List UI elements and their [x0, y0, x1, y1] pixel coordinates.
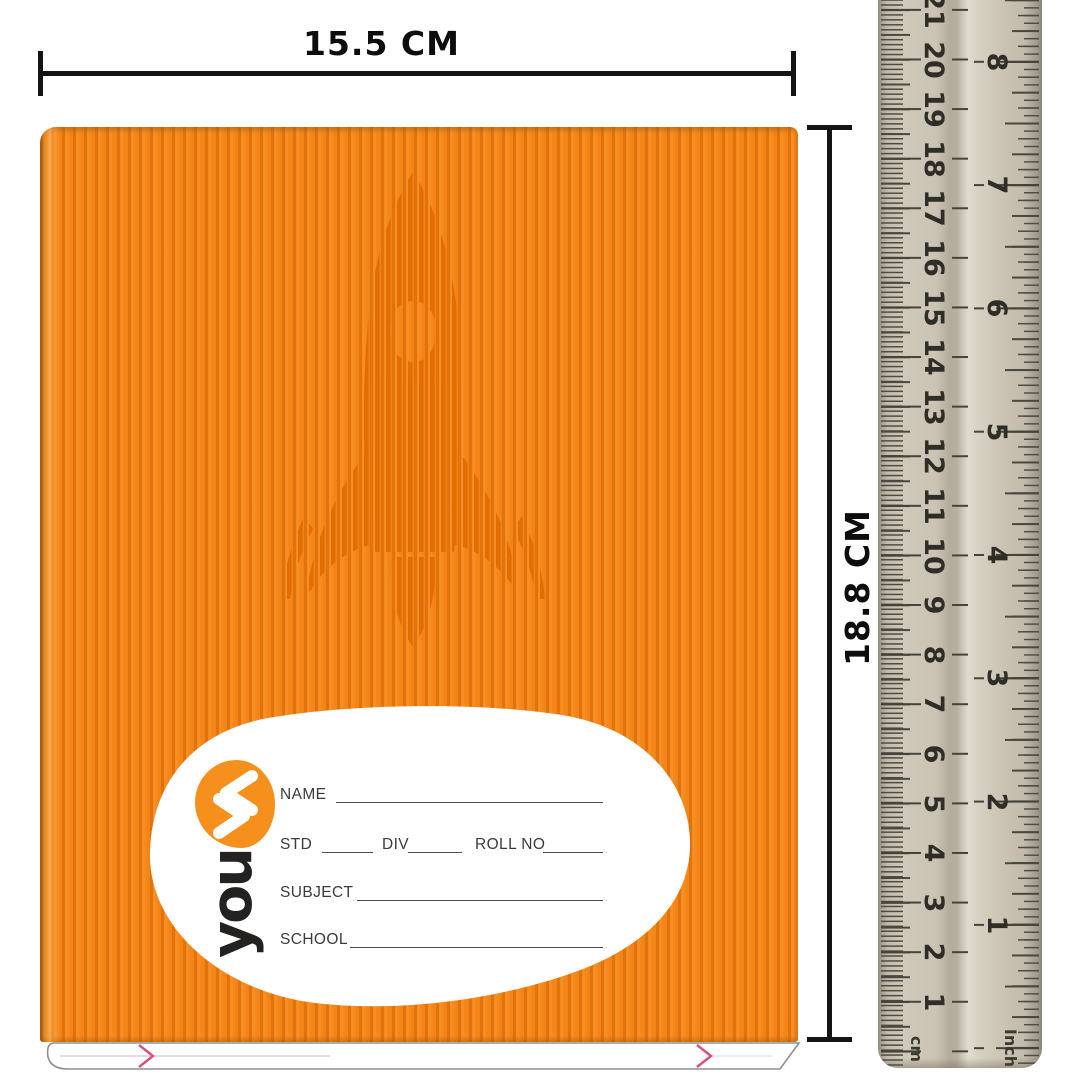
ruler-cm-number-16: 16 [913, 238, 953, 278]
ruler-cm-number-5: 5 [913, 784, 953, 824]
page-edges [48, 1043, 799, 1069]
ruler-cm-number-20: 20 [913, 40, 953, 80]
ruler-cm-number-12: 12 [913, 436, 953, 476]
name-fill-line [336, 802, 603, 803]
ruler-cm-unit-label: cm [904, 1029, 928, 1068]
notebook-cover [40, 127, 798, 1042]
ruler-inch-number-7: 7 [976, 165, 1016, 205]
youva-logo-text: you [204, 850, 267, 958]
ruler-cm-number-8: 8 [913, 635, 953, 675]
ruler-cm-number-9: 9 [913, 585, 953, 625]
ruler-inch-ticks [878, 0, 1042, 1068]
ruler-inch-number-6: 6 [976, 288, 1016, 328]
ruler-cm-number-21: 21 [913, 0, 953, 30]
ruler-inch-number-8: 8 [976, 42, 1016, 82]
youva-logo-blob [195, 760, 275, 848]
youva-logo: you [175, 778, 295, 958]
ruler-cm-number-7: 7 [913, 684, 953, 724]
ruler-cm-number-4: 4 [913, 833, 953, 873]
ruler-inch-number-5: 5 [976, 412, 1016, 452]
height-dimension-line [827, 127, 832, 1042]
subject-fill-line [357, 900, 603, 901]
ruler: cm Inch 21201918171615141312111098765432… [878, 0, 1042, 1068]
ruler-inch-number-1: 1 [976, 905, 1016, 945]
ruler-cm-number-13: 13 [913, 387, 953, 427]
ruler-cm-number-3: 3 [913, 883, 953, 923]
ruler-cm-number-14: 14 [913, 337, 953, 377]
roll-no-label: ROLL NO [475, 836, 545, 854]
height-dimension-tick-top [807, 125, 852, 130]
height-dimension-tick-bottom [807, 1037, 852, 1042]
ruler-inch-number-3: 3 [976, 658, 1016, 698]
ruler-cm-number-2: 2 [913, 932, 953, 972]
product-dimension-image: 15.5 CM [0, 0, 1080, 1080]
ruler-cm-number-11: 11 [913, 486, 953, 526]
ruler-cm-number-17: 17 [913, 188, 953, 228]
ruler-cm-number-6: 6 [913, 734, 953, 774]
div-fill-line [408, 852, 462, 853]
ruler-cm-number-15: 15 [913, 288, 953, 328]
ruler-cm-number-18: 18 [913, 139, 953, 179]
div-label: DIV [382, 836, 409, 854]
ruler-inch-unit-label: Inch [998, 1028, 1022, 1068]
width-dimension-tick-right [791, 51, 796, 96]
width-dimension-label: 15.5 CM [303, 24, 460, 63]
std-fill-line [322, 852, 373, 853]
ruler-inch-number-4: 4 [976, 535, 1016, 575]
ruler-cm-number-19: 19 [913, 89, 953, 129]
width-dimension-line [40, 71, 796, 76]
youva-logo-mark-icon [195, 760, 275, 848]
ruler-cm-number-10: 10 [913, 536, 953, 576]
height-dimension-label: 18.8 CM [838, 524, 878, 666]
ruler-cm-number-1: 1 [913, 982, 953, 1022]
page-chevron-right [697, 1045, 711, 1067]
page-chevron-left [139, 1045, 153, 1067]
ruler-inch-number-2: 2 [976, 782, 1016, 822]
roll-no-fill-line [543, 852, 603, 853]
school-fill-line [350, 947, 603, 948]
width-dimension-tick-left [38, 51, 43, 96]
